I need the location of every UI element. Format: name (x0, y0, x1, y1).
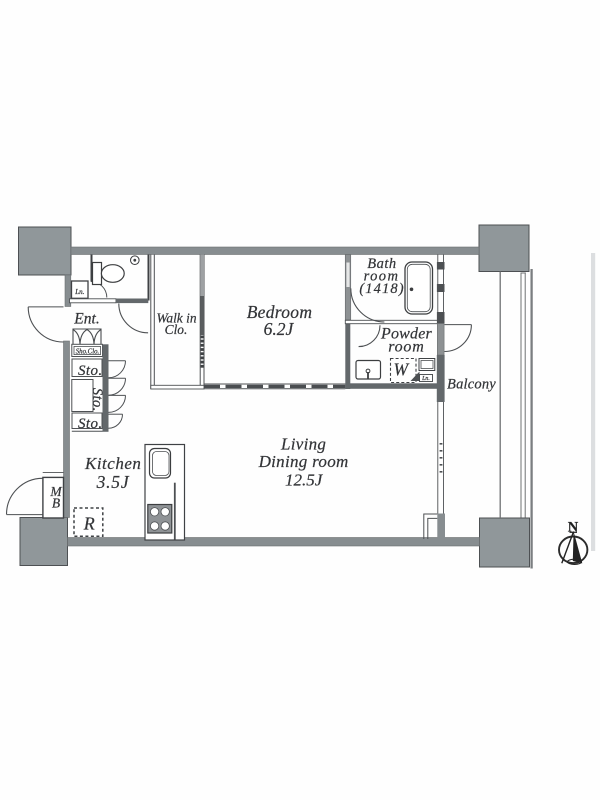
svg-text:Sto.: Sto. (78, 363, 103, 379)
svg-text:Sto.: Sto. (89, 388, 105, 412)
svg-text:B: B (52, 495, 60, 510)
svg-text:12.5J: 12.5J (285, 471, 324, 490)
svg-text:Clo.: Clo. (165, 322, 188, 337)
svg-text:Sto.: Sto. (78, 416, 103, 432)
svg-text:Ln.: Ln. (421, 376, 430, 382)
svg-text:Living: Living (280, 434, 326, 453)
svg-text:Ln.: Ln. (74, 288, 84, 296)
svg-text:Kitchen: Kitchen (84, 454, 141, 473)
svg-text:(1418): (1418) (359, 281, 404, 297)
svg-text:Sho.Clo.: Sho.Clo. (76, 349, 100, 356)
svg-text:Balcony: Balcony (447, 376, 496, 392)
svg-text:3.5J: 3.5J (96, 472, 130, 492)
svg-text:6.2J: 6.2J (264, 319, 295, 339)
svg-text:W: W (394, 359, 410, 379)
svg-text:Ent.: Ent. (73, 310, 99, 327)
svg-text:Dining room: Dining room (258, 452, 349, 471)
svg-text:R: R (83, 513, 95, 533)
svg-text:room: room (388, 338, 424, 355)
